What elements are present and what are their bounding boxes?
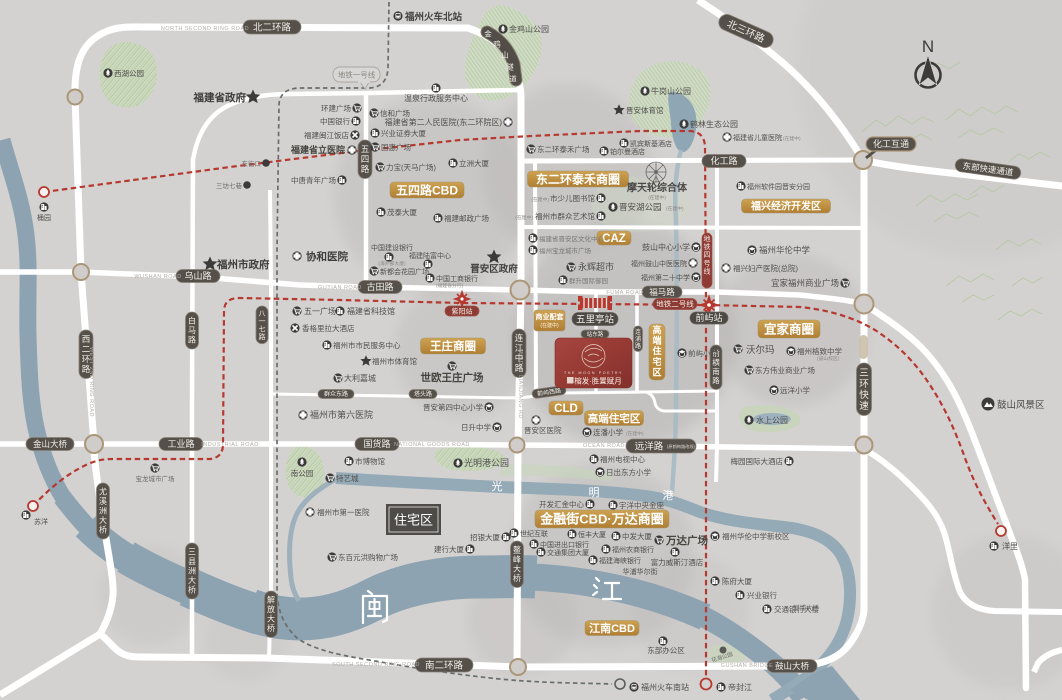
- svg-text:(在建中): (在建中): [515, 214, 533, 221]
- svg-text:福兴妇产医院(总院): 福兴妇产医院(总院): [733, 263, 798, 273]
- svg-text:桥: 桥: [188, 585, 196, 595]
- svg-text:永辉超市: 永辉超市: [578, 261, 614, 272]
- svg-text:福建省科技馆: 福建省科技馆: [347, 306, 395, 316]
- svg-text:市博物馆: 市博物馆: [355, 456, 385, 466]
- svg-text:福建省政府: 福建省政府: [193, 91, 247, 104]
- svg-text:福建邮政广场: 福建邮政广场: [444, 213, 489, 223]
- svg-text:OCEAN ROAD: OCEAN ROAD: [583, 443, 625, 449]
- svg-text:宝龙城市广场: 宝龙城市广场: [136, 474, 176, 483]
- svg-text:中国工商银行: 中国工商银行: [436, 274, 478, 283]
- svg-text:茂泰大厦: 茂泰大厦: [387, 207, 417, 217]
- svg-text:晋安湖公园: 晋安湖公园: [619, 202, 662, 212]
- svg-text:THE MOON POETRY: THE MOON POETRY: [564, 371, 623, 375]
- svg-text:GUTIAN ROAD: GUTIAN ROAD: [318, 285, 362, 291]
- svg-text:五四路CBD: 五四路CBD: [396, 182, 458, 197]
- svg-text:道: 道: [509, 74, 517, 84]
- svg-text:山: 山: [501, 50, 509, 60]
- svg-text:福州软件园晋安分园: 福州软件园晋安分园: [747, 182, 810, 191]
- svg-text:站东路: 站东路: [587, 330, 604, 338]
- svg-text:牛岗山公园: 牛岗山公园: [651, 86, 691, 96]
- svg-text:万达广场: 万达广场: [665, 534, 708, 547]
- svg-text:福州格致中学: 福州格致中学: [797, 346, 842, 356]
- svg-text:东二环泰禾广场: 东二环泰禾广场: [537, 144, 590, 154]
- svg-text:三坊七巷: 三坊七巷: [216, 181, 243, 190]
- svg-text:新都会花园广场: 新都会花园广场: [380, 267, 429, 276]
- svg-text:放: 放: [267, 604, 275, 614]
- svg-text:香格里拉大酒店: 香格里拉大酒店: [302, 323, 355, 333]
- svg-text:化工路: 化工路: [710, 155, 737, 166]
- svg-text:FUMA ROAD: FUMA ROAD: [606, 290, 643, 296]
- svg-text:县: 县: [188, 557, 196, 566]
- svg-text:日升中学: 日升中学: [461, 422, 491, 432]
- svg-text:大: 大: [188, 575, 196, 585]
- svg-text:福兴经济开发区: 福兴经济开发区: [750, 200, 821, 213]
- svg-text:日出东方小学: 日出东方小学: [606, 467, 651, 477]
- svg-text:南: 南: [712, 366, 720, 376]
- svg-text:福州火车南站: 福州火车南站: [641, 682, 689, 692]
- svg-text:福州宝龙城市广场: 福州宝龙城市广场: [539, 246, 592, 255]
- svg-text:MIDDLE LIANJIANG RD: MIDDLE LIANJIANG RD: [517, 349, 523, 419]
- svg-text:福州市政府: 福州市政府: [216, 258, 270, 271]
- svg-text:中发大厦: 中发大厦: [622, 531, 652, 541]
- svg-text:群升国际御园: 群升国际御园: [569, 276, 608, 285]
- svg-text:摩天轮综合体: 摩天轮综合体: [627, 181, 688, 194]
- svg-text:区: 区: [652, 367, 661, 377]
- svg-text:N: N: [922, 37, 934, 56]
- svg-text:东部办公区: 东部办公区: [647, 645, 685, 655]
- svg-text:隧: 隧: [506, 62, 514, 72]
- svg-text:八: 八: [259, 311, 266, 318]
- svg-text:(在建中): (在建中): [540, 322, 559, 329]
- svg-text:凯宾斯基酒店: 凯宾斯基酒店: [630, 139, 672, 148]
- svg-text:福州火车北站: 福州火车北站: [404, 11, 463, 23]
- svg-text:大: 大: [267, 614, 275, 624]
- svg-text:东二环泰禾商圈: 东二环泰禾商圈: [536, 171, 620, 186]
- svg-text:晋安体育馆: 晋安体育馆: [626, 105, 664, 115]
- svg-text:福州市第六医院: 福州市第六医院: [310, 409, 373, 420]
- svg-text:开发汇金中心: 开发汇金中心: [539, 499, 584, 509]
- svg-text:福州华伦中学: 福州华伦中学: [759, 245, 811, 255]
- svg-text:北二环路: 北二环路: [253, 21, 292, 33]
- svg-text:地: 地: [704, 234, 711, 243]
- svg-text:大: 大: [99, 515, 107, 525]
- svg-text:(海外部大厦): (海外部大厦): [378, 260, 406, 267]
- svg-text:王庄商圈: 王庄商圈: [430, 339, 476, 353]
- svg-text:交通集团大厦: 交通集团大厦: [547, 548, 589, 557]
- svg-text:富力威斯汀酒店: 富力威斯汀酒店: [651, 557, 704, 567]
- svg-text:福建省立医院: 福建省立医院: [290, 144, 345, 155]
- svg-text:福州市群众艺术馆: 福州市群众艺术馆: [535, 211, 595, 221]
- svg-text:福州华伦中学新校区: 福州华伦中学新校区: [722, 531, 790, 541]
- svg-text:四: 四: [361, 154, 370, 164]
- svg-text:SOUTH SECOND RING ROAD: SOUTH SECOND RING ROAD: [332, 662, 420, 668]
- svg-text:铂尔曼酒店: 铂尔曼酒店: [610, 147, 645, 156]
- svg-text:兴业证券大厦: 兴业证券大厦: [381, 128, 426, 138]
- svg-text:峰: 峰: [513, 554, 521, 564]
- svg-text:水上公园: 水上公园: [756, 415, 788, 425]
- svg-text:福建海峡银行: 福建海峡银行: [599, 556, 641, 565]
- svg-text:光: 光: [492, 479, 503, 493]
- svg-text:明: 明: [589, 486, 600, 499]
- svg-text:福建省儿童医院: 福建省儿童医院: [733, 133, 782, 142]
- svg-text:(原鹤梅路改线): (原鹤梅路改线): [667, 443, 696, 450]
- svg-text:三: 三: [188, 548, 196, 557]
- svg-text:GUSHAN BRIDGE: GUSHAN BRIDGE: [721, 663, 774, 669]
- svg-text:力宝(天马广场): 力宝(天马广场): [386, 162, 436, 172]
- svg-text:宅: 宅: [652, 356, 661, 367]
- svg-text:市少儿图书馆: 市少儿图书馆: [550, 193, 595, 203]
- svg-text:连: 连: [515, 333, 524, 343]
- svg-text:NATIONAL GOODS ROAD: NATIONAL GOODS ROAD: [394, 442, 470, 448]
- svg-text:福州农商银行: 福州农商银行: [612, 545, 654, 554]
- svg-text:(福建省分行): (福建省分行): [436, 282, 464, 289]
- svg-text:福建省第二人民医院(东二环院区): 福建省第二人民医院(东二环院区): [385, 117, 503, 127]
- svg-text:路: 路: [712, 375, 720, 385]
- svg-text:梅园国际大酒店: 梅园国际大酒店: [731, 456, 784, 466]
- svg-text:七: 七: [259, 324, 266, 333]
- svg-text:西: 西: [82, 334, 91, 344]
- svg-text:温泉行政服务中心: 温泉行政服务中心: [404, 93, 468, 103]
- svg-text:远洋小学: 远洋小学: [780, 385, 810, 395]
- svg-text:大: 大: [513, 564, 521, 574]
- svg-text:三: 三: [859, 368, 869, 379]
- svg-text:尤: 尤: [99, 487, 107, 497]
- svg-text:金山大桥: 金山大桥: [33, 439, 68, 449]
- svg-text:光明港公园: 光明港公园: [464, 457, 509, 468]
- svg-text:速: 速: [859, 401, 869, 412]
- svg-text:国货路: 国货路: [363, 438, 390, 449]
- svg-text:中国银行: 中国银行: [320, 116, 350, 126]
- svg-text:鼓山风景区: 鼓山风景区: [997, 399, 1045, 411]
- svg-text:号: 号: [704, 259, 711, 267]
- svg-text:(鼓山校区): (鼓山校区): [817, 355, 840, 362]
- svg-text:(在建中): (在建中): [531, 196, 549, 203]
- svg-text:WEST 2ND RING ROAD: WEST 2ND RING ROAD: [88, 347, 94, 417]
- svg-text:鼓山大桥: 鼓山大桥: [775, 661, 810, 671]
- svg-text:江南CBD: 江南CBD: [589, 621, 635, 635]
- svg-text:陈府大厦: 陈府大厦: [722, 576, 752, 586]
- svg-text:鳌: 鳌: [513, 545, 521, 555]
- svg-text:乌山路: 乌山路: [184, 270, 211, 281]
- svg-text:福州市第一医院: 福州市第一医院: [317, 507, 370, 517]
- svg-text:国惠广场: 国惠广场: [381, 142, 411, 152]
- svg-text:福建闽江饭店: 福建闽江饭店: [304, 130, 349, 140]
- svg-text:东街口: 东街口: [242, 159, 262, 168]
- svg-text:中国建设银行: 中国建设银行: [371, 243, 413, 252]
- svg-text:远洋路: 远洋路: [635, 441, 664, 453]
- svg-text:(在建中): (在建中): [648, 194, 666, 201]
- svg-text:金鸡山公园: 金鸡山公园: [509, 24, 549, 34]
- svg-text:福州第二十中学: 福州第二十中学: [641, 273, 690, 282]
- svg-text:魁浦大桥: 魁浦大桥: [793, 603, 820, 612]
- svg-text:路: 路: [635, 342, 641, 350]
- svg-text:高: 高: [652, 324, 661, 335]
- svg-text:洲: 洲: [99, 507, 107, 516]
- svg-text:沃尔玛: 沃尔玛: [746, 344, 775, 356]
- svg-text:特艺城: 特艺城: [336, 473, 359, 483]
- svg-text:福州电视中心: 福州电视中心: [600, 454, 645, 464]
- svg-text:CAZ: CAZ: [602, 233, 626, 245]
- svg-text:五里亭站: 五里亭站: [576, 313, 615, 325]
- svg-text:路: 路: [259, 332, 266, 341]
- svg-text:马: 马: [188, 326, 196, 335]
- svg-text:鼓山中心小学: 鼓山中心小学: [642, 242, 690, 252]
- svg-text:五一广场: 五一广场: [304, 306, 336, 316]
- svg-text:港: 港: [663, 489, 674, 502]
- svg-text:(在建中): (在建中): [666, 205, 684, 212]
- svg-text:苏洋: 苏洋: [34, 517, 48, 526]
- svg-text:华浦华尔街: 华浦华尔街: [623, 567, 658, 576]
- svg-text:招银大厦: 招银大厦: [470, 532, 500, 542]
- svg-text:中国进出口银行: 中国进出口银行: [540, 540, 589, 549]
- svg-text:桥: 桥: [267, 623, 275, 633]
- svg-text:溪: 溪: [99, 496, 107, 506]
- svg-text:榕发·胜置赋月: 榕发·胜置赋月: [574, 376, 622, 386]
- svg-text:NORTH SECOND RING ROAD: NORTH SECOND RING ROAD: [161, 26, 249, 32]
- svg-text:金: 金: [484, 29, 492, 39]
- svg-text:连: 连: [635, 328, 641, 336]
- svg-text:洋里: 洋里: [1002, 541, 1018, 551]
- svg-text:恒丰大厦: 恒丰大厦: [578, 530, 606, 539]
- svg-text:鸡: 鸡: [493, 39, 501, 49]
- svg-text:福州鼓山中医医院: 福州鼓山中医医院: [631, 259, 687, 268]
- svg-text:中唐青年广场: 中唐青年广场: [291, 175, 336, 185]
- svg-text:地铁二号线: 地铁二号线: [656, 299, 694, 309]
- svg-text:福马路: 福马路: [649, 287, 675, 297]
- svg-text:商业配套: 商业配套: [536, 312, 565, 321]
- svg-text:世欧王庄广场: 世欧王庄广场: [421, 371, 484, 384]
- svg-text:塔头路: 塔头路: [414, 390, 432, 398]
- svg-text:洲: 洲: [188, 567, 196, 576]
- svg-text:INDUSTRIAL ROAD: INDUSTRIAL ROAD: [201, 442, 258, 448]
- svg-text:鹤林生态公园: 鹤林生态公园: [690, 119, 738, 129]
- svg-text:前屿小学: 前屿小学: [688, 348, 718, 358]
- svg-text:福建省晋安区文化中心: 福建省晋安区文化中心: [539, 234, 605, 243]
- svg-text:南公园: 南公园: [291, 468, 314, 478]
- svg-text:桥: 桥: [99, 525, 107, 535]
- svg-text:横: 横: [712, 357, 720, 367]
- svg-text:(在建中): (在建中): [783, 135, 801, 142]
- svg-text:浦: 浦: [635, 335, 641, 343]
- svg-text:线: 线: [704, 266, 711, 275]
- svg-text:前屿站: 前屿站: [695, 312, 722, 323]
- svg-text:路: 路: [361, 164, 370, 174]
- svg-text:福州市市民服务中心: 福州市市民服务中心: [333, 340, 401, 350]
- svg-text:环建广场: 环建广场: [321, 103, 351, 113]
- svg-text:兴业银行: 兴业银行: [747, 590, 777, 600]
- svg-text:四: 四: [704, 251, 711, 259]
- svg-text:晋安第四中心小学: 晋安第四中心小学: [423, 402, 483, 412]
- svg-text:工业路: 工业路: [167, 438, 194, 449]
- svg-text:WUSHAN ROAD: WUSHAN ROAD: [134, 274, 181, 280]
- svg-text:晋安区医院: 晋安区医院: [524, 425, 562, 435]
- svg-text:解: 解: [267, 595, 275, 605]
- svg-text:白: 白: [188, 316, 196, 326]
- svg-text:紫阳站: 紫阳站: [452, 307, 473, 316]
- svg-text:化工互通: 化工互通: [873, 138, 909, 149]
- svg-text:(在建中): (在建中): [626, 430, 644, 437]
- svg-text:路: 路: [188, 335, 196, 345]
- svg-text:晋安区政府: 晋安区政府: [470, 263, 518, 275]
- svg-text:环: 环: [859, 379, 869, 390]
- svg-text:南二环路: 南二环路: [425, 659, 464, 671]
- svg-text:连潘小学: 连潘小学: [593, 427, 623, 437]
- svg-text:古田路: 古田路: [366, 281, 393, 292]
- svg-text:福州市体育馆: 福州市体育馆: [372, 356, 417, 366]
- svg-text:立洲大厦: 立洲大厦: [459, 158, 489, 168]
- svg-text:群众东路: 群众东路: [324, 390, 348, 398]
- svg-text:地铁一号线: 地铁一号线: [338, 70, 376, 80]
- svg-text:快: 快: [859, 389, 869, 401]
- svg-text:端: 端: [652, 335, 661, 346]
- svg-text:东方伟业商业广场: 东方伟业商业广场: [755, 365, 815, 375]
- svg-text:建行大厦: 建行大厦: [434, 544, 464, 554]
- svg-text:西湖公园: 西湖公园: [114, 69, 144, 78]
- svg-text:帝封江: 帝封江: [728, 682, 752, 692]
- svg-text:信和广场: 信和广场: [380, 108, 410, 118]
- svg-text:大利嘉城: 大利嘉城: [344, 373, 376, 383]
- svg-text:宜家福州商业广场: 宜家福州商业广场: [771, 278, 839, 288]
- svg-text:世纪互联: 世纪互联: [520, 529, 548, 538]
- svg-text:高端住宅区: 高端住宅区: [588, 412, 641, 425]
- svg-text:宜家商圈: 宜家商圈: [764, 322, 814, 337]
- svg-text:一: 一: [259, 319, 266, 326]
- svg-text:五: 五: [361, 144, 370, 154]
- svg-text:福建陆富中心: 福建陆富中心: [409, 251, 451, 260]
- svg-text:东百元洪购物广场: 东百元洪购物广场: [338, 552, 398, 562]
- svg-text:铁: 铁: [704, 242, 711, 251]
- svg-text:桶园: 桶园: [37, 213, 51, 222]
- svg-text:桥: 桥: [513, 573, 521, 583]
- svg-text:宇洋中央金座: 宇洋中央金座: [619, 500, 664, 510]
- svg-text:金融街CBD·万达商圈: 金融街CBD·万达商圈: [539, 512, 664, 527]
- svg-text:住: 住: [652, 345, 661, 356]
- svg-text:协和医院: 协和医院: [306, 250, 348, 263]
- svg-text:住宅区: 住宅区: [394, 513, 433, 528]
- svg-text:CLD: CLD: [554, 403, 578, 415]
